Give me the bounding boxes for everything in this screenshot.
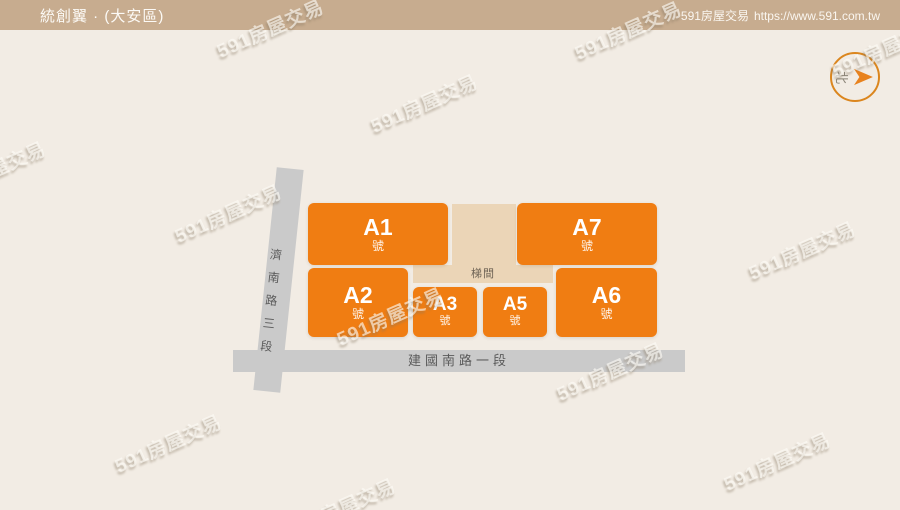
road-char: 三 <box>262 314 276 332</box>
page-title: 統創翼 · (大安區) <box>40 5 164 26</box>
building-a2[interactable]: A2 號 <box>308 268 408 337</box>
watermark: 591房屋交易 <box>366 67 482 138</box>
building-a7-label: A7 <box>572 215 601 239</box>
road-char: 濟 <box>269 245 283 263</box>
site-url: https://www.591.com.tw <box>754 9 880 23</box>
watermark: 591房屋交易 <box>744 214 860 285</box>
building-a7[interactable]: A7 號 <box>517 203 657 265</box>
building-a6[interactable]: A6 號 <box>556 268 657 337</box>
watermark: 591房屋交易 <box>0 134 50 205</box>
watermark: 591房屋交易 <box>284 471 400 510</box>
building-a1[interactable]: A1 號 <box>308 203 448 265</box>
watermark: 591房屋交易 <box>110 407 226 478</box>
header-bar: 統創翼 · (大安區) 591房屋交易https://www.591.com.t… <box>0 0 900 30</box>
building-a3-label: A3 <box>433 295 457 315</box>
building-a5-label: A5 <box>503 295 527 315</box>
building-a1-suffix: 號 <box>372 239 384 253</box>
stairwell-label: 梯間 <box>413 265 553 283</box>
site-credit: 591房屋交易https://www.591.com.tw <box>676 7 880 24</box>
compass: 北 <box>830 52 880 102</box>
building-a2-label: A2 <box>343 283 372 307</box>
road-char: 路 <box>264 291 278 309</box>
building-a5[interactable]: A5 號 <box>483 287 547 337</box>
compass-arrow-icon <box>852 68 874 86</box>
building-a2-suffix: 號 <box>352 307 364 321</box>
site-name: 591房屋交易 <box>681 9 749 23</box>
building-a7-suffix: 號 <box>581 239 593 253</box>
road-horizontal: 建國南路一段 <box>233 350 685 372</box>
road-char: 段 <box>260 337 274 355</box>
watermark-layer: 591房屋交易 591房屋交易 591房屋交易 591房屋交易 591房屋交易 … <box>0 0 900 510</box>
watermark: 591房屋交易 <box>719 425 835 496</box>
page: 統創翼 · (大安區) 591房屋交易https://www.591.com.t… <box>0 0 900 510</box>
building-a6-label: A6 <box>592 283 621 307</box>
building-a3[interactable]: A3 號 <box>413 287 477 337</box>
north-label: 北 <box>833 70 852 83</box>
building-a5-suffix: 號 <box>510 315 521 328</box>
building-a3-suffix: 號 <box>440 315 451 328</box>
building-a1-label: A1 <box>363 215 392 239</box>
road-char: 南 <box>267 268 281 286</box>
building-a6-suffix: 號 <box>600 307 612 321</box>
